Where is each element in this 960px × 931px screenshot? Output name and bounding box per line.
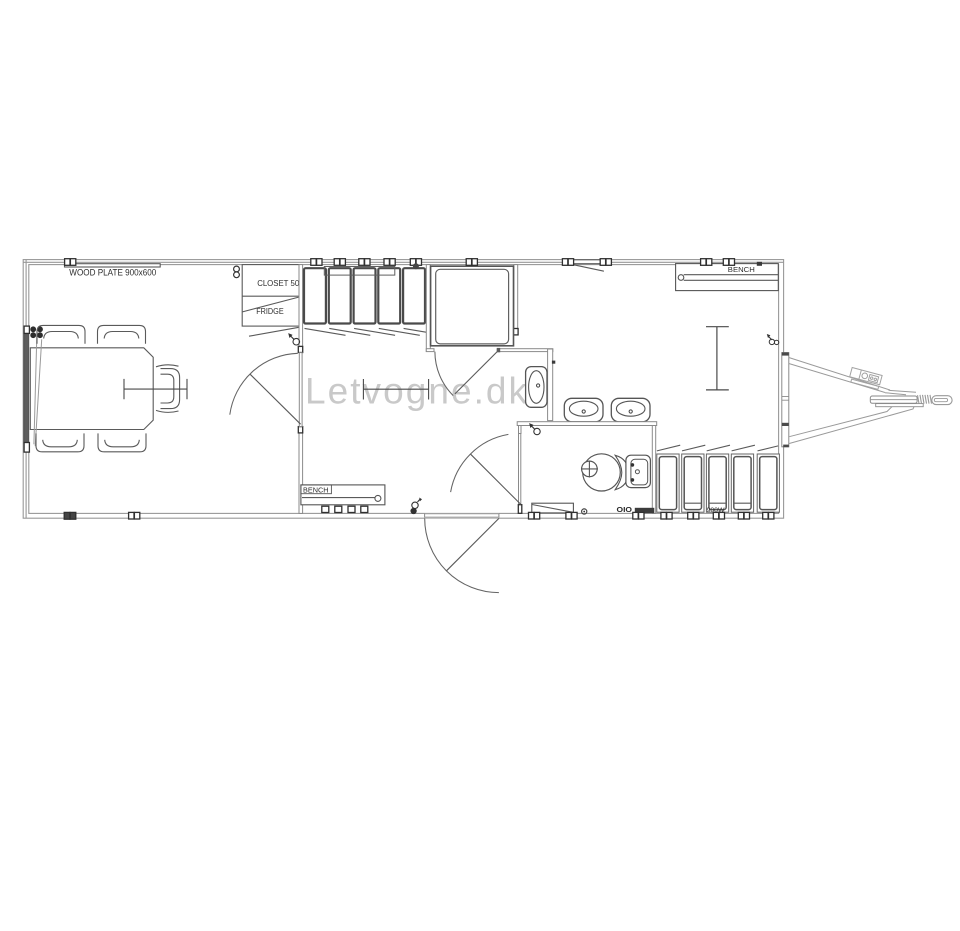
svg-text:WOOD PLATE 900x600: WOOD PLATE 900x600 bbox=[69, 267, 156, 278]
svg-text:BENCH: BENCH bbox=[728, 267, 755, 274]
svg-text:Letvogne.dk: Letvogne.dk bbox=[305, 371, 528, 412]
svg-text:OIO: OIO bbox=[617, 505, 633, 514]
svg-text:FRIDGE: FRIDGE bbox=[256, 306, 284, 316]
svg-text:CLOSET 50: CLOSET 50 bbox=[257, 278, 299, 288]
